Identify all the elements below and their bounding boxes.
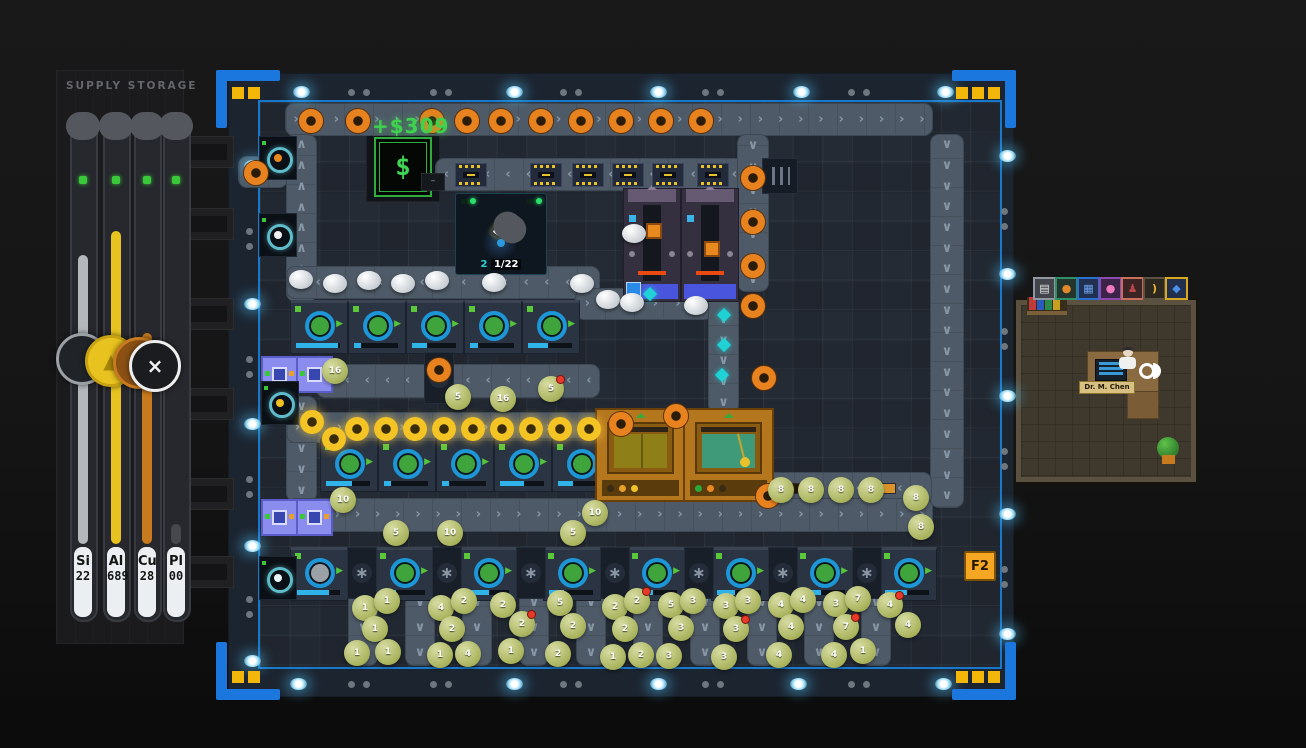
- belt-arrow-icon: ›: [717, 115, 722, 125]
- gear-item[interactable]: [741, 166, 765, 190]
- supply-storage-title: SUPPLY STORAGE: [66, 80, 197, 92]
- belt-arrow-icon: ›: [859, 115, 864, 125]
- resource-amount: 28: [138, 569, 156, 584]
- belt-arrow-icon: ›: [556, 510, 561, 520]
- gear-item[interactable]: [529, 109, 553, 133]
- belt-arrow-icon: ›: [798, 115, 803, 125]
- status-led: [353, 306, 359, 312]
- chip-slot: [620, 172, 636, 178]
- output-arrow-icon: ▶: [673, 566, 680, 576]
- germ-blob-item[interactable]: 8: [858, 477, 884, 503]
- border-light: [506, 678, 523, 690]
- border-stud: [430, 681, 437, 688]
- border-stud: [1001, 328, 1008, 335]
- output-arrow-icon: ▶: [452, 319, 459, 329]
- infection-dot: [642, 587, 651, 596]
- belt-arrow-icon: ›: [496, 510, 501, 520]
- filter-block[interactable]: [296, 499, 333, 536]
- emitter-core: [274, 154, 282, 162]
- machine-core: [810, 558, 840, 588]
- status-led: [527, 199, 541, 204]
- belt-arrow-icon: ∨: [718, 398, 729, 408]
- filter-core: [307, 367, 322, 382]
- belt-arrow-icon: ‹: [465, 376, 470, 386]
- money-machine[interactable]: $ –: [374, 137, 432, 197]
- belt-arrow-icon: ‹: [365, 376, 370, 386]
- status-half-icon: [1153, 363, 1161, 379]
- chip-item[interactable]: [652, 163, 684, 187]
- gold-gear-item[interactable]: [548, 417, 572, 441]
- germ-blob-item[interactable]: 10: [582, 500, 608, 526]
- border-light: [290, 678, 307, 690]
- tube-led: [79, 176, 87, 184]
- germ-blob-item[interactable]: 4: [895, 612, 921, 638]
- output-light: [289, 514, 294, 519]
- belt-arrow-icon: ›: [536, 510, 541, 520]
- bolt-icon: [687, 251, 693, 257]
- belt-arrow-icon: ›: [839, 510, 844, 520]
- belt-arrow-icon: ∨: [871, 623, 882, 633]
- gear-item[interactable]: [489, 109, 513, 133]
- resource-badge-plastic: ×: [129, 340, 181, 392]
- white-blob-item[interactable]: [620, 293, 644, 312]
- gold-gear-item[interactable]: [300, 410, 324, 434]
- belt-arrow-icon: ›: [698, 510, 703, 520]
- machine-core: [305, 558, 335, 588]
- gear-item[interactable]: [752, 366, 776, 390]
- belt-arrow-icon: ›: [637, 510, 642, 520]
- gold-gear-item[interactable]: [374, 417, 398, 441]
- status-led: [632, 553, 638, 559]
- germ-blob-item[interactable]: 4: [821, 642, 847, 668]
- infection-dot: [741, 615, 750, 624]
- belt-arrow-icon: ∨: [296, 465, 307, 475]
- gear-item[interactable]: [609, 412, 633, 436]
- emitter-core: [274, 231, 282, 239]
- gem-icon[interactable]: ◆: [1165, 277, 1188, 300]
- white-blob-item[interactable]: [357, 271, 381, 290]
- belt-arrow-icon: ›: [798, 510, 803, 520]
- research-station[interactable]: 2 1/22: [455, 193, 547, 275]
- machine-core: [894, 558, 924, 588]
- border-light: [935, 678, 952, 690]
- belt-arrow-icon: ›: [818, 510, 823, 520]
- machine-core: [726, 558, 756, 588]
- test-tube-icon: [490, 213, 513, 239]
- extractor-machine[interactable]: ▶: [494, 438, 552, 492]
- gear-item[interactable]: [299, 109, 323, 133]
- gold-gear-item[interactable]: [432, 417, 456, 441]
- germ-blob-item[interactable]: 1: [374, 588, 400, 614]
- germ-blob-item[interactable]: 5: [538, 376, 564, 402]
- corner-bracket: [952, 70, 1016, 128]
- infection-dot: [895, 591, 904, 600]
- tube-fill-level: [111, 231, 121, 544]
- border-stud: [1001, 223, 1008, 230]
- extractor-machine[interactable]: ▶: [378, 438, 436, 492]
- germ-blob-item[interactable]: 1: [362, 616, 388, 642]
- germ-blob-item[interactable]: 8: [828, 477, 854, 503]
- heat-bar: [696, 271, 724, 275]
- belt-arrow-icon: ∨: [586, 648, 597, 658]
- belt-arrow-icon: ∨: [942, 244, 953, 254]
- gear-item[interactable]: [741, 294, 765, 318]
- gear-item[interactable]: [346, 109, 370, 133]
- tube-led: [143, 176, 151, 184]
- progress-bar: [412, 343, 456, 348]
- white-blob-item[interactable]: [391, 274, 415, 293]
- germ-blob-item[interactable]: 4: [455, 641, 481, 667]
- warning-square: [232, 671, 244, 683]
- germ-blob-item[interactable]: 2: [545, 641, 571, 667]
- lamp-icon[interactable]: ●: [1055, 277, 1078, 300]
- germ-blob-item[interactable]: 3: [668, 615, 694, 641]
- corner-bracket: [952, 642, 1016, 700]
- machine-hood: [686, 189, 734, 202]
- belt-arrow-icon: ›: [415, 510, 420, 520]
- filter-core: [307, 510, 322, 525]
- desk-extension: [1127, 391, 1159, 419]
- belt-arrow-icon: ∨: [942, 202, 953, 212]
- ready-arrow-icon: [724, 413, 734, 418]
- belt-arrow-icon: ‹: [523, 278, 528, 288]
- germ-blob-item[interactable]: 1: [375, 639, 401, 665]
- money-machine-display: –: [421, 173, 445, 191]
- chip-item[interactable]: [455, 163, 487, 187]
- gold-gear-item[interactable]: [345, 417, 369, 441]
- gear-item[interactable]: [741, 254, 765, 278]
- output-arrow-icon: ▶: [925, 566, 932, 576]
- fan-icon: ∗: [689, 563, 709, 583]
- fan-icon: ∗: [352, 563, 372, 583]
- gear-item[interactable]: [427, 358, 451, 382]
- warning-square: [248, 671, 260, 683]
- extractor-machine[interactable]: ▶: [436, 438, 494, 492]
- gear-item[interactable]: [689, 109, 713, 133]
- belt-arrow-icon: ∧: [296, 223, 307, 233]
- brain-icon[interactable]: ●: [1099, 277, 1122, 300]
- white-blob-item[interactable]: [425, 271, 449, 290]
- tube-fill-level: [78, 255, 88, 544]
- input-light: [300, 371, 305, 376]
- emitter-machine[interactable]: [259, 556, 297, 600]
- output-arrow-icon: ▶: [424, 457, 431, 467]
- filter-core: [272, 367, 287, 382]
- heat-bar: [638, 271, 666, 275]
- gear-item[interactable]: [741, 210, 765, 234]
- warning-square: [248, 87, 260, 99]
- belt-arrow-icon: ›: [859, 510, 864, 520]
- progress-bar: [442, 481, 486, 486]
- germ-blob-item[interactable]: 4: [790, 587, 816, 613]
- chip-item[interactable]: [697, 163, 729, 187]
- germ-blob-item[interactable]: 16: [490, 386, 516, 412]
- hook-icon[interactable]: ): [1143, 277, 1166, 300]
- chip-slot: [538, 172, 554, 178]
- germ-blob-item[interactable]: 5: [383, 520, 409, 546]
- vent-block[interactable]: [762, 158, 798, 194]
- germ-blob-item[interactable]: 8: [768, 477, 794, 503]
- bracket-arm: [952, 70, 1016, 81]
- border-light: [650, 86, 667, 98]
- belt-arrow-icon: ›: [556, 115, 561, 125]
- extractor-machine[interactable]: ▶: [406, 300, 464, 354]
- border-stud: [702, 89, 709, 96]
- gear-item[interactable]: [244, 161, 268, 185]
- germ-blob-item[interactable]: 1: [498, 638, 524, 664]
- belt-arrow-icon: ∧: [296, 244, 307, 254]
- white-blob-item[interactable]: [596, 290, 620, 309]
- germ-blob-item[interactable]: 1: [600, 644, 626, 670]
- border-stud: [246, 476, 253, 483]
- extractor-machine[interactable]: ▶: [522, 300, 580, 354]
- chip-item[interactable]: [530, 163, 562, 187]
- germ-blob-item[interactable]: 5: [445, 384, 471, 410]
- warning-square: [988, 87, 1000, 99]
- emitter-machine[interactable]: [261, 381, 299, 425]
- white-blob-item[interactable]: [622, 224, 646, 243]
- status-led: [527, 306, 533, 312]
- border-stud: [246, 228, 253, 235]
- germ-blob-item[interactable]: 3: [656, 643, 682, 669]
- belt-arrow-icon: ›: [758, 115, 763, 125]
- output-light: [289, 371, 294, 376]
- gear-item[interactable]: [455, 109, 479, 133]
- extractor-machine[interactable]: ▶: [290, 547, 348, 601]
- germ-blob-item[interactable]: 2: [612, 616, 638, 642]
- germ-blob-item[interactable]: 3: [711, 644, 737, 670]
- status-led: [295, 306, 301, 312]
- belt-arrow-icon: ›: [718, 510, 723, 520]
- belt-arrow-icon: ‹: [385, 376, 390, 386]
- belt-arrow-icon: ›: [334, 115, 339, 125]
- belt-arrow-icon: ›: [758, 510, 763, 520]
- germ-blob-item[interactable]: 10: [437, 520, 463, 546]
- border-stud: [1001, 448, 1008, 455]
- output-arrow-icon: ▶: [510, 319, 517, 329]
- belt-arrow-icon: ›: [899, 115, 904, 125]
- indicator-chip: [629, 215, 636, 222]
- fan-block[interactable]: ∗: [516, 547, 546, 599]
- germ-blob-item[interactable]: 8: [903, 485, 929, 511]
- resource-amount: 22: [74, 569, 92, 584]
- white-blob-item[interactable]: [289, 270, 313, 289]
- germ-blob-item[interactable]: 2: [509, 611, 535, 637]
- refinery-machine[interactable]: [623, 188, 681, 302]
- germ-blob-item[interactable]: 10: [330, 487, 356, 513]
- belt-arrow-icon: ∨: [942, 326, 953, 336]
- output-arrow-icon: ▶: [421, 566, 428, 576]
- input-light: [265, 514, 270, 519]
- tube-led: [172, 176, 180, 184]
- belt-arrow-icon: ∨: [942, 430, 953, 440]
- border-light: [244, 540, 261, 552]
- gear-item[interactable]: [609, 109, 633, 133]
- germ-blob-item[interactable]: 2: [628, 642, 654, 668]
- germ-blob-item[interactable]: 5: [560, 520, 586, 546]
- document-icon[interactable]: ▤: [1033, 277, 1056, 300]
- gold-gear-item[interactable]: [461, 417, 485, 441]
- chip-item[interactable]: [612, 163, 644, 187]
- machine-core: [335, 449, 365, 479]
- indicator-light: [719, 485, 726, 492]
- status-led: [441, 444, 447, 450]
- belt-arrow-icon: ›: [738, 510, 743, 520]
- belt-arrow-icon: ∨: [757, 623, 768, 633]
- game-screen: SUPPLY STORAGE +$309 $ – 2 1/22 F2 Dr. M…: [0, 0, 1306, 748]
- chip-slot: [705, 172, 721, 178]
- crystal-icon[interactable]: ▦: [1077, 277, 1100, 300]
- status-led: [383, 444, 389, 450]
- machine-screen: [614, 434, 667, 468]
- gold-gear-item[interactable]: [490, 417, 514, 441]
- germ-blob-item[interactable]: 1: [344, 640, 370, 666]
- belt-arrow-icon: ›: [585, 299, 590, 309]
- germ-blob-item[interactable]: 7: [833, 614, 859, 640]
- filter-block[interactable]: [261, 499, 298, 536]
- white-blob-item[interactable]: [570, 274, 594, 293]
- tube-fill-level: [171, 524, 181, 544]
- machine-core: [390, 558, 420, 588]
- belt-arrow-icon: ›: [738, 115, 743, 125]
- emitter-core: [276, 399, 284, 407]
- chip-slot: [463, 172, 479, 178]
- chip-item[interactable]: [572, 163, 604, 187]
- refinery-machine[interactable]: [681, 188, 739, 302]
- border-stud: [717, 89, 724, 96]
- machine-hood: [628, 189, 676, 202]
- germ-blob-item[interactable]: 1: [427, 642, 453, 668]
- germ-blob-item[interactable]: 4: [778, 614, 804, 640]
- gear-item[interactable]: [569, 109, 593, 133]
- gold-gear-item[interactable]: [322, 427, 346, 451]
- germ-blob-item[interactable]: 2: [451, 588, 477, 614]
- fan-block[interactable]: ∗: [347, 547, 377, 599]
- machine-core: [642, 558, 672, 588]
- output-arrow-icon: ▶: [366, 457, 373, 467]
- tube-led: [112, 176, 120, 184]
- gear-item[interactable]: [649, 109, 673, 133]
- conveyor-belt[interactable]: ‹‹‹‹‹‹‹‹‹‹‹‹‹‹‹‹‹: [435, 158, 787, 191]
- resource-label: Si: [74, 555, 92, 569]
- input-light: [265, 371, 270, 376]
- dollar-icon: $: [395, 152, 411, 182]
- border-light: [244, 418, 261, 430]
- belt-arrow-icon: ∨: [942, 409, 953, 419]
- germ-blob-item[interactable]: 2: [439, 616, 465, 642]
- border-stud: [863, 681, 870, 688]
- control-strip: [602, 480, 679, 496]
- belt-arrow-icon: ∨: [942, 140, 953, 150]
- output-arrow-icon: ▶: [568, 319, 575, 329]
- resource-label: Cu: [138, 555, 156, 569]
- tube-label-plate: Si22: [74, 547, 92, 617]
- figure-icon[interactable]: ♟: [1121, 277, 1144, 300]
- germ-blob-item[interactable]: 16: [322, 358, 348, 384]
- belt-arrow-icon: ›: [879, 510, 884, 520]
- border-stud: [445, 89, 452, 96]
- belt-arrow-icon: ‹: [566, 376, 571, 386]
- floor-shortcut-badge[interactable]: F2: [964, 551, 996, 581]
- progress-bar: [326, 481, 370, 486]
- bolt-icon: [727, 251, 733, 257]
- germ-blob-item[interactable]: 3: [735, 588, 761, 614]
- germ-blob-item[interactable]: 2: [624, 588, 650, 614]
- white-blob-item[interactable]: [684, 296, 708, 315]
- extractor-machine[interactable]: ▶: [348, 300, 406, 354]
- germ-blob-item[interactable]: 8: [908, 514, 934, 540]
- germ-blob-item[interactable]: 5: [547, 590, 573, 616]
- machine-core: [421, 311, 451, 341]
- belt-arrow-icon: ∨: [296, 444, 307, 454]
- border-stud: [1001, 208, 1008, 215]
- border-stud: [848, 89, 855, 96]
- machine-screen: [702, 434, 755, 468]
- fan-icon: ∗: [605, 563, 625, 583]
- progress-bar: [528, 343, 572, 348]
- germ-blob-item[interactable]: 3: [680, 588, 706, 614]
- germ-blob-item[interactable]: 2: [560, 613, 586, 639]
- belt-arrow-icon: ∨: [942, 388, 953, 398]
- germ-blob-item[interactable]: 4: [766, 642, 792, 668]
- belt-arrow-icon: ‹: [691, 170, 696, 180]
- machine-core: [509, 449, 539, 479]
- scientist-avatar[interactable]: [1123, 347, 1133, 357]
- extractor-machine[interactable]: ▶: [290, 300, 348, 354]
- emitter-machine[interactable]: [259, 213, 297, 257]
- germ-blob-item[interactable]: 8: [798, 477, 824, 503]
- gold-gear-item[interactable]: [403, 417, 427, 441]
- belt-arrow-icon: ∨: [942, 368, 953, 378]
- border-stud: [246, 356, 253, 363]
- border-light: [650, 678, 667, 690]
- belt-arrow-icon: ∨: [942, 306, 953, 316]
- border-stud: [246, 491, 253, 498]
- belt-arrow-icon: ∨: [942, 264, 953, 274]
- belt-arrow-icon: ‹: [586, 376, 591, 386]
- belt-arrow-icon: ∧: [296, 161, 307, 171]
- gear-item[interactable]: [664, 404, 688, 428]
- output-arrow-icon: ▶: [841, 566, 848, 576]
- belt-arrow-icon: ›: [778, 115, 783, 125]
- belt-arrow-icon: ›: [899, 510, 904, 520]
- belt-arrow-icon: ∧: [296, 182, 307, 192]
- germ-blob-item[interactable]: 3: [723, 616, 749, 642]
- germ-blob-item[interactable]: 7: [845, 586, 871, 612]
- resource-amount: 689: [107, 569, 125, 584]
- belt-arrow-icon: ›: [516, 510, 521, 520]
- belt-arrow-icon: ›: [677, 510, 682, 520]
- white-blob-item[interactable]: [323, 274, 347, 293]
- status-led: [411, 306, 417, 312]
- white-blob-item[interactable]: [482, 273, 506, 292]
- progress-bar: [296, 590, 340, 595]
- indicator-light: [619, 485, 626, 492]
- fan-block[interactable]: ∗: [600, 547, 630, 599]
- status-led: [262, 218, 266, 222]
- germ-blob-item[interactable]: 1: [850, 638, 876, 664]
- belt-arrow-icon: ∨: [700, 623, 711, 633]
- indicator-light: [695, 485, 702, 492]
- belt-arrow-icon: ∨: [942, 450, 953, 460]
- extractor-machine[interactable]: ▶: [464, 300, 522, 354]
- infection-dot: [527, 610, 536, 619]
- output-arrow-icon: ▶: [336, 566, 343, 576]
- gold-gear-item[interactable]: [577, 417, 601, 441]
- status-led: [264, 386, 268, 390]
- conveyor-belt[interactable]: ∨∨∨∨∨∨∨∨∨∨∨∨∨∨∨∨∨∨: [930, 134, 964, 508]
- gold-gear-item[interactable]: [519, 417, 543, 441]
